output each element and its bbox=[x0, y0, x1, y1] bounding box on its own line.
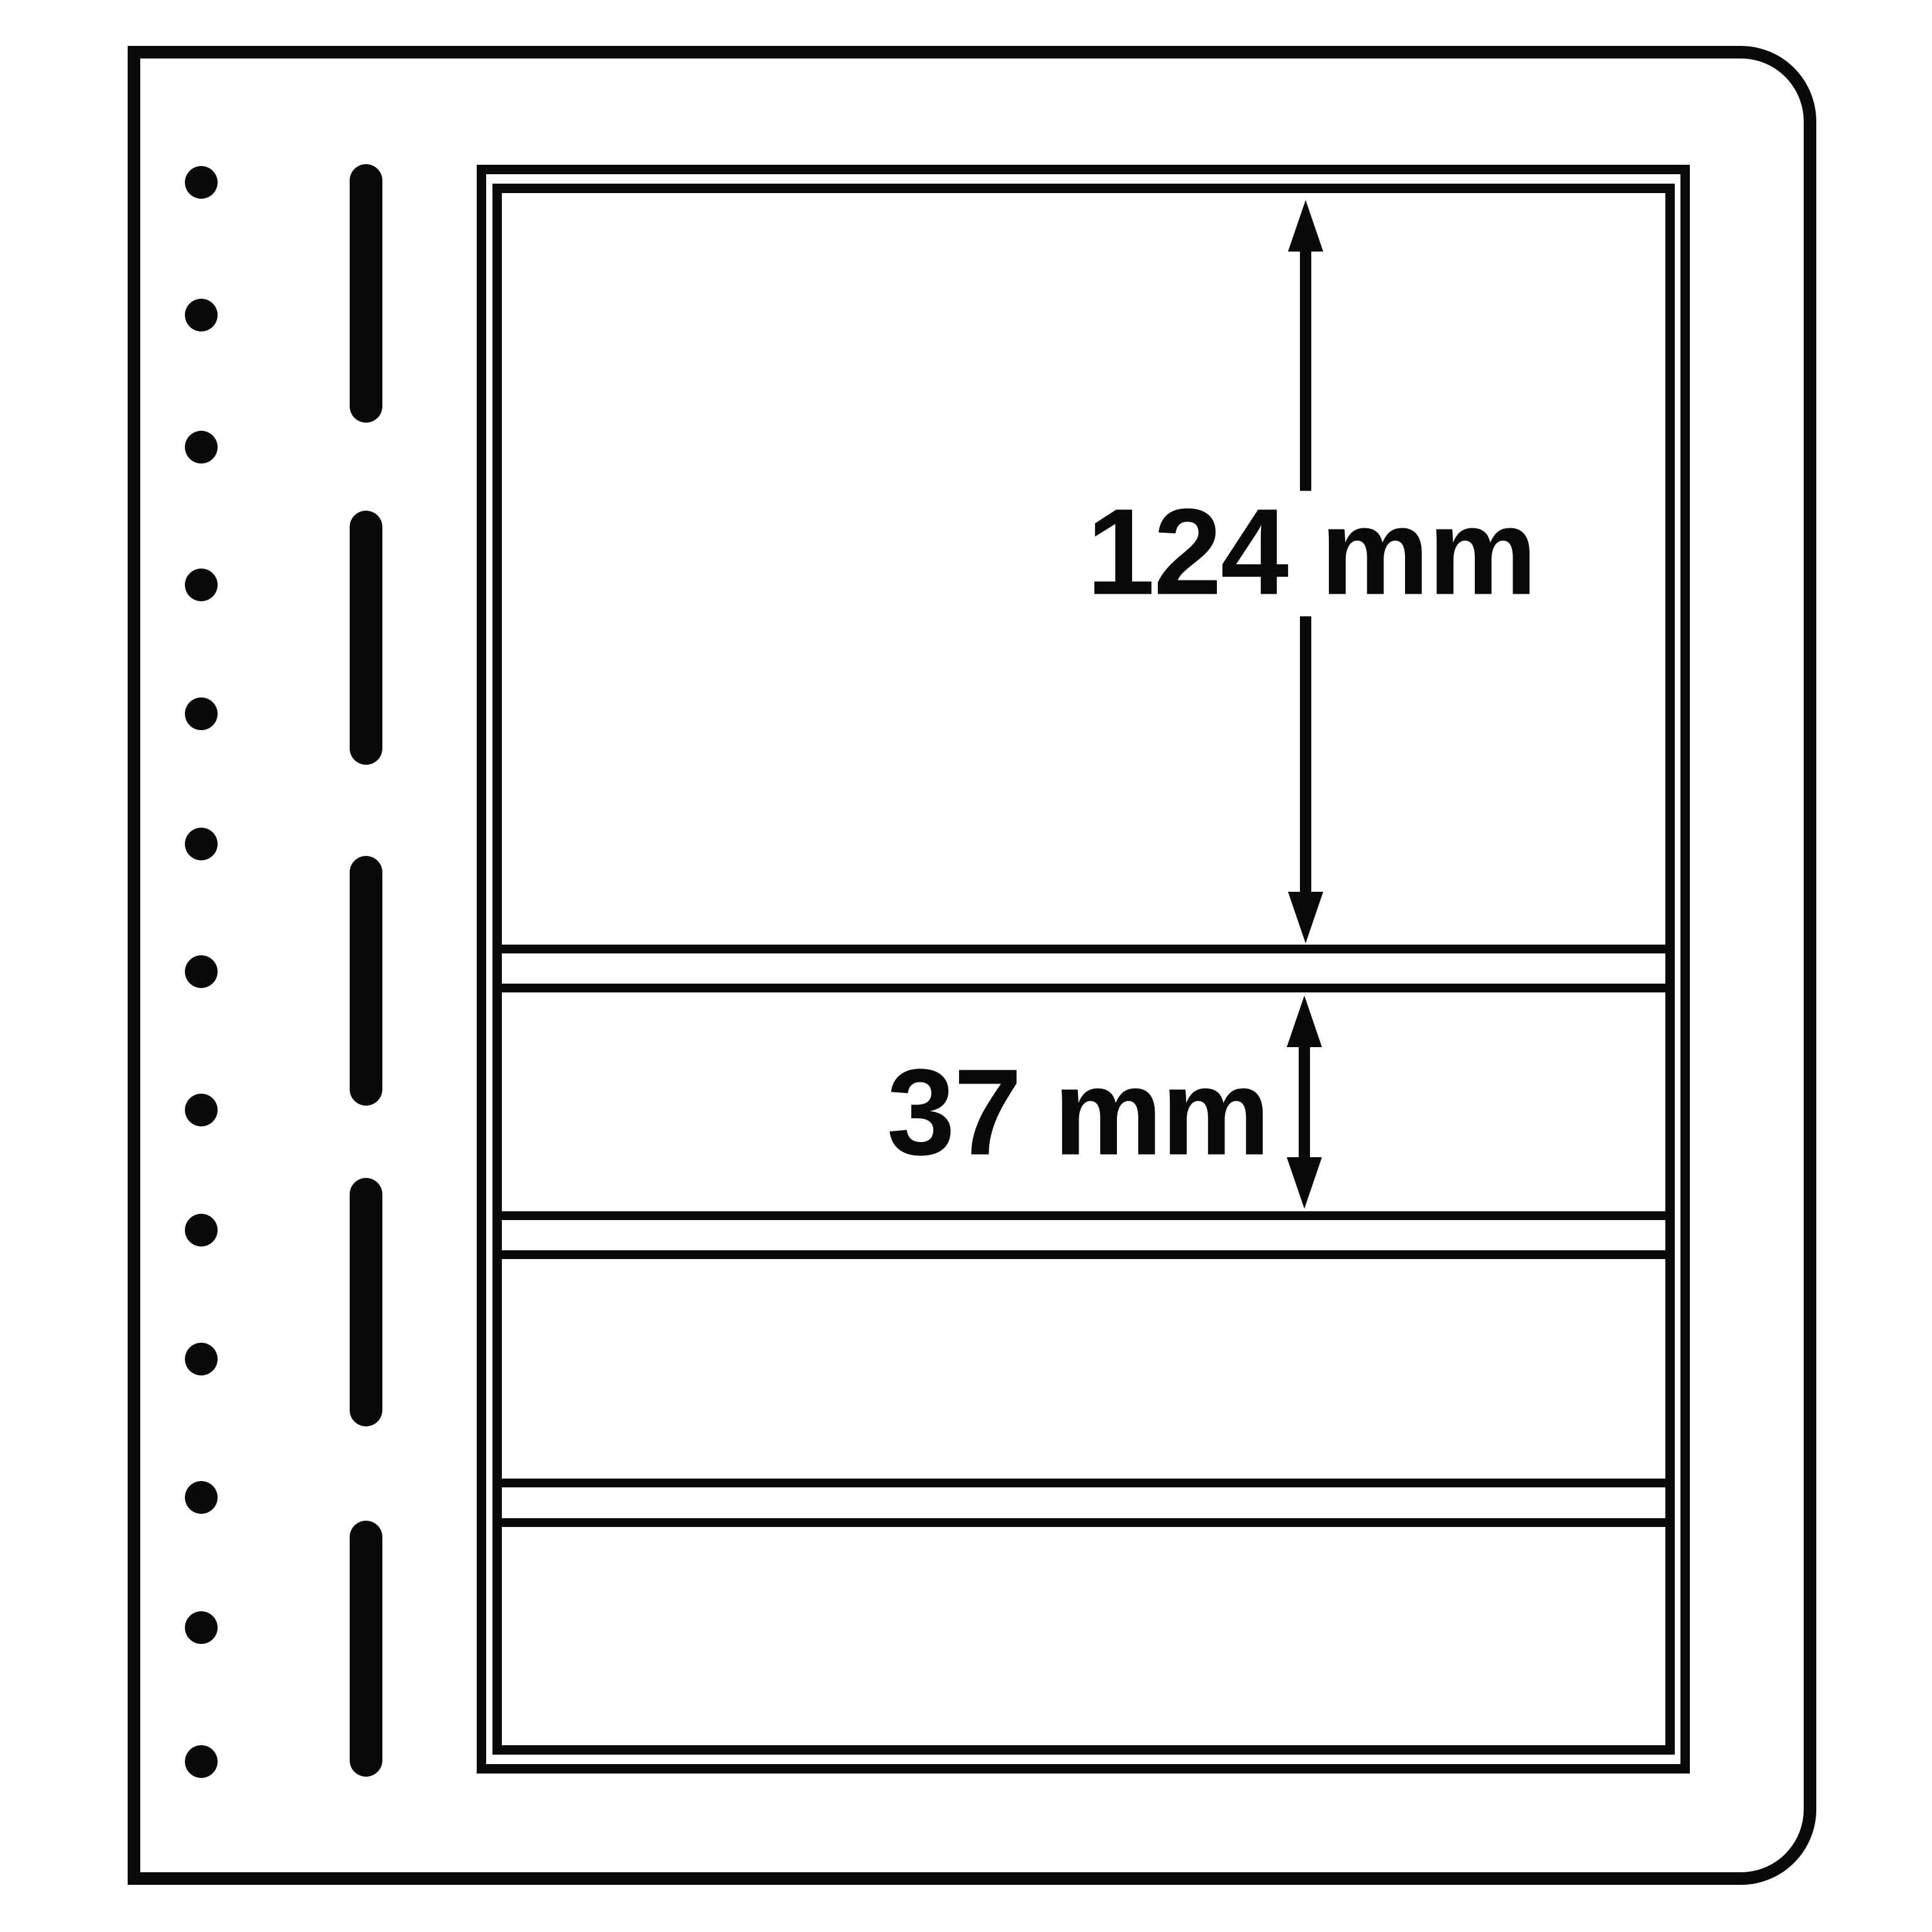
album-page-diagram: 124 mm 37 mm bbox=[0, 0, 1932, 1932]
dimension-label-124mm: 124 mm bbox=[1075, 491, 1547, 614]
punch-hole-icon bbox=[185, 1745, 218, 1778]
pocket-separator-line bbox=[497, 945, 1670, 953]
pocket-separator-line bbox=[497, 1479, 1670, 1487]
pocket-separator-line bbox=[497, 1250, 1670, 1259]
pocket-separator-line bbox=[497, 1211, 1670, 1220]
dimension-label-37mm: 37 mm bbox=[875, 1052, 1280, 1174]
arrow-up-icon bbox=[1288, 200, 1323, 252]
punch-hole-icon bbox=[185, 299, 218, 331]
pocket-separator-line bbox=[497, 984, 1670, 992]
punch-hole-icon bbox=[185, 955, 218, 988]
arrow-down-icon bbox=[1287, 1157, 1322, 1209]
punch-hole-icon bbox=[185, 828, 218, 860]
punch-slot-icon bbox=[350, 164, 382, 423]
punch-hole-icon bbox=[185, 1611, 218, 1644]
punch-slot-icon bbox=[350, 1178, 382, 1426]
punch-slot-icon bbox=[350, 1521, 382, 1777]
arrow-shaft bbox=[1299, 1044, 1310, 1160]
punch-hole-icon bbox=[185, 569, 218, 601]
punch-slot-icon bbox=[350, 511, 382, 765]
arrow-up-icon bbox=[1287, 996, 1322, 1047]
pocket-separator-line bbox=[497, 1518, 1670, 1527]
arrow-down-icon bbox=[1288, 892, 1323, 943]
arrow-shaft-upper bbox=[1300, 248, 1311, 509]
punch-hole-icon bbox=[185, 431, 218, 464]
punch-hole-icon bbox=[185, 166, 218, 199]
punch-hole-icon bbox=[185, 1214, 218, 1246]
punch-hole-icon bbox=[185, 1343, 218, 1375]
punch-hole-icon bbox=[185, 697, 218, 730]
punch-hole-icon bbox=[185, 1481, 218, 1514]
arrow-shaft-lower bbox=[1300, 616, 1311, 893]
punch-slot-icon bbox=[350, 856, 382, 1106]
punch-hole-icon bbox=[185, 1094, 218, 1126]
